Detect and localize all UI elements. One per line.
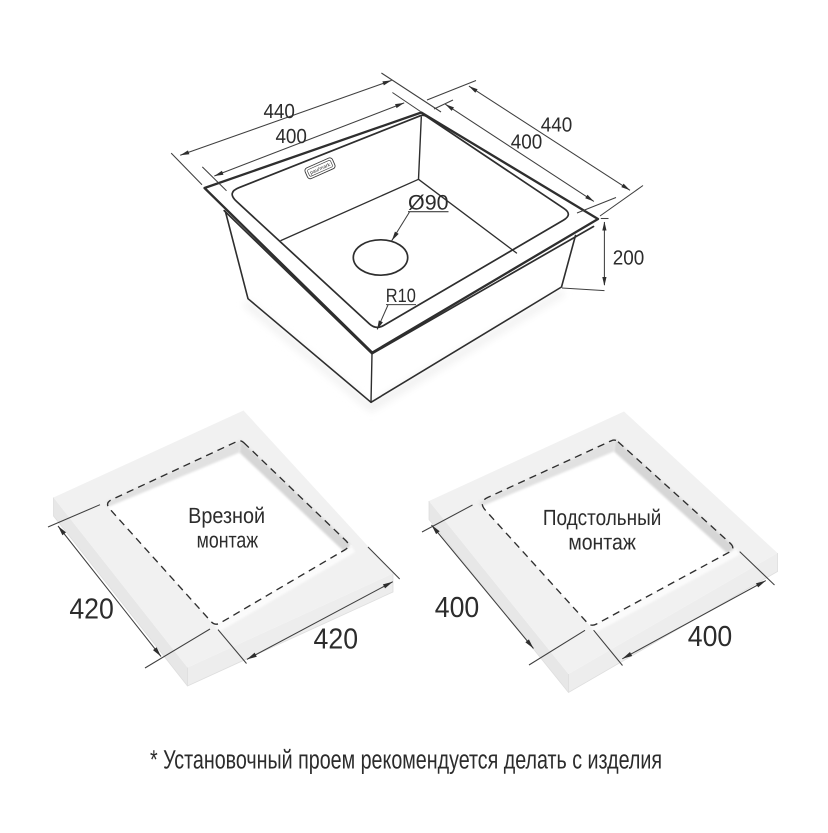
svg-text:400: 400 [511,131,543,153]
svg-text:400: 400 [688,621,733,653]
svg-text:R10: R10 [386,286,416,307]
svg-text:420: 420 [314,623,359,655]
svg-text:Подстольный: Подстольный [543,505,662,530]
svg-text:400: 400 [435,592,480,624]
svg-text:Врезной: Врезной [188,503,265,528]
svg-text:440: 440 [263,101,295,123]
svg-text:420: 420 [69,593,114,625]
svg-text:440: 440 [541,115,573,137]
svg-text:200: 200 [613,247,645,269]
svg-text:монтаж: монтаж [197,527,259,552]
svg-text:Ø90: Ø90 [408,192,449,215]
svg-text:400: 400 [275,126,307,148]
svg-text:* Установочный проем рекоменду: * Установочный проем рекомендуется делат… [150,745,662,775]
svg-text:монтаж: монтаж [568,529,636,554]
